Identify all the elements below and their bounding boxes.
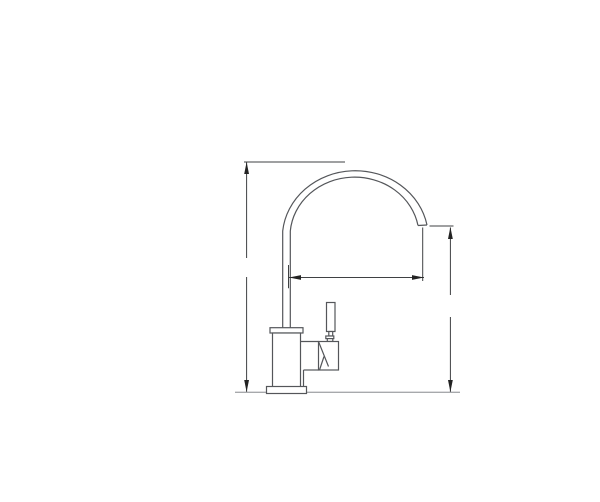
body-top-flange	[270, 328, 303, 333]
base-plate	[267, 387, 307, 394]
spout-outlet-height-dimension	[430, 226, 454, 392]
lever-neck	[329, 332, 333, 337]
faucet-technical-drawing	[0, 0, 600, 502]
faucet	[267, 171, 428, 394]
lever-handle	[327, 303, 336, 332]
spout-tip-cap	[418, 225, 427, 226]
outlet-dim-arrow-down	[448, 380, 453, 392]
height-dim-arrow-down	[244, 380, 249, 392]
drawing-canvas	[0, 0, 600, 502]
height-dim-arrow-up	[244, 162, 249, 174]
spout-reach-dimension	[289, 228, 425, 289]
spout-outer-curve	[283, 171, 427, 330]
spout-inner-curve	[290, 177, 418, 330]
outlet-dim-arrow-up	[448, 227, 453, 239]
faucet-body	[273, 333, 301, 387]
